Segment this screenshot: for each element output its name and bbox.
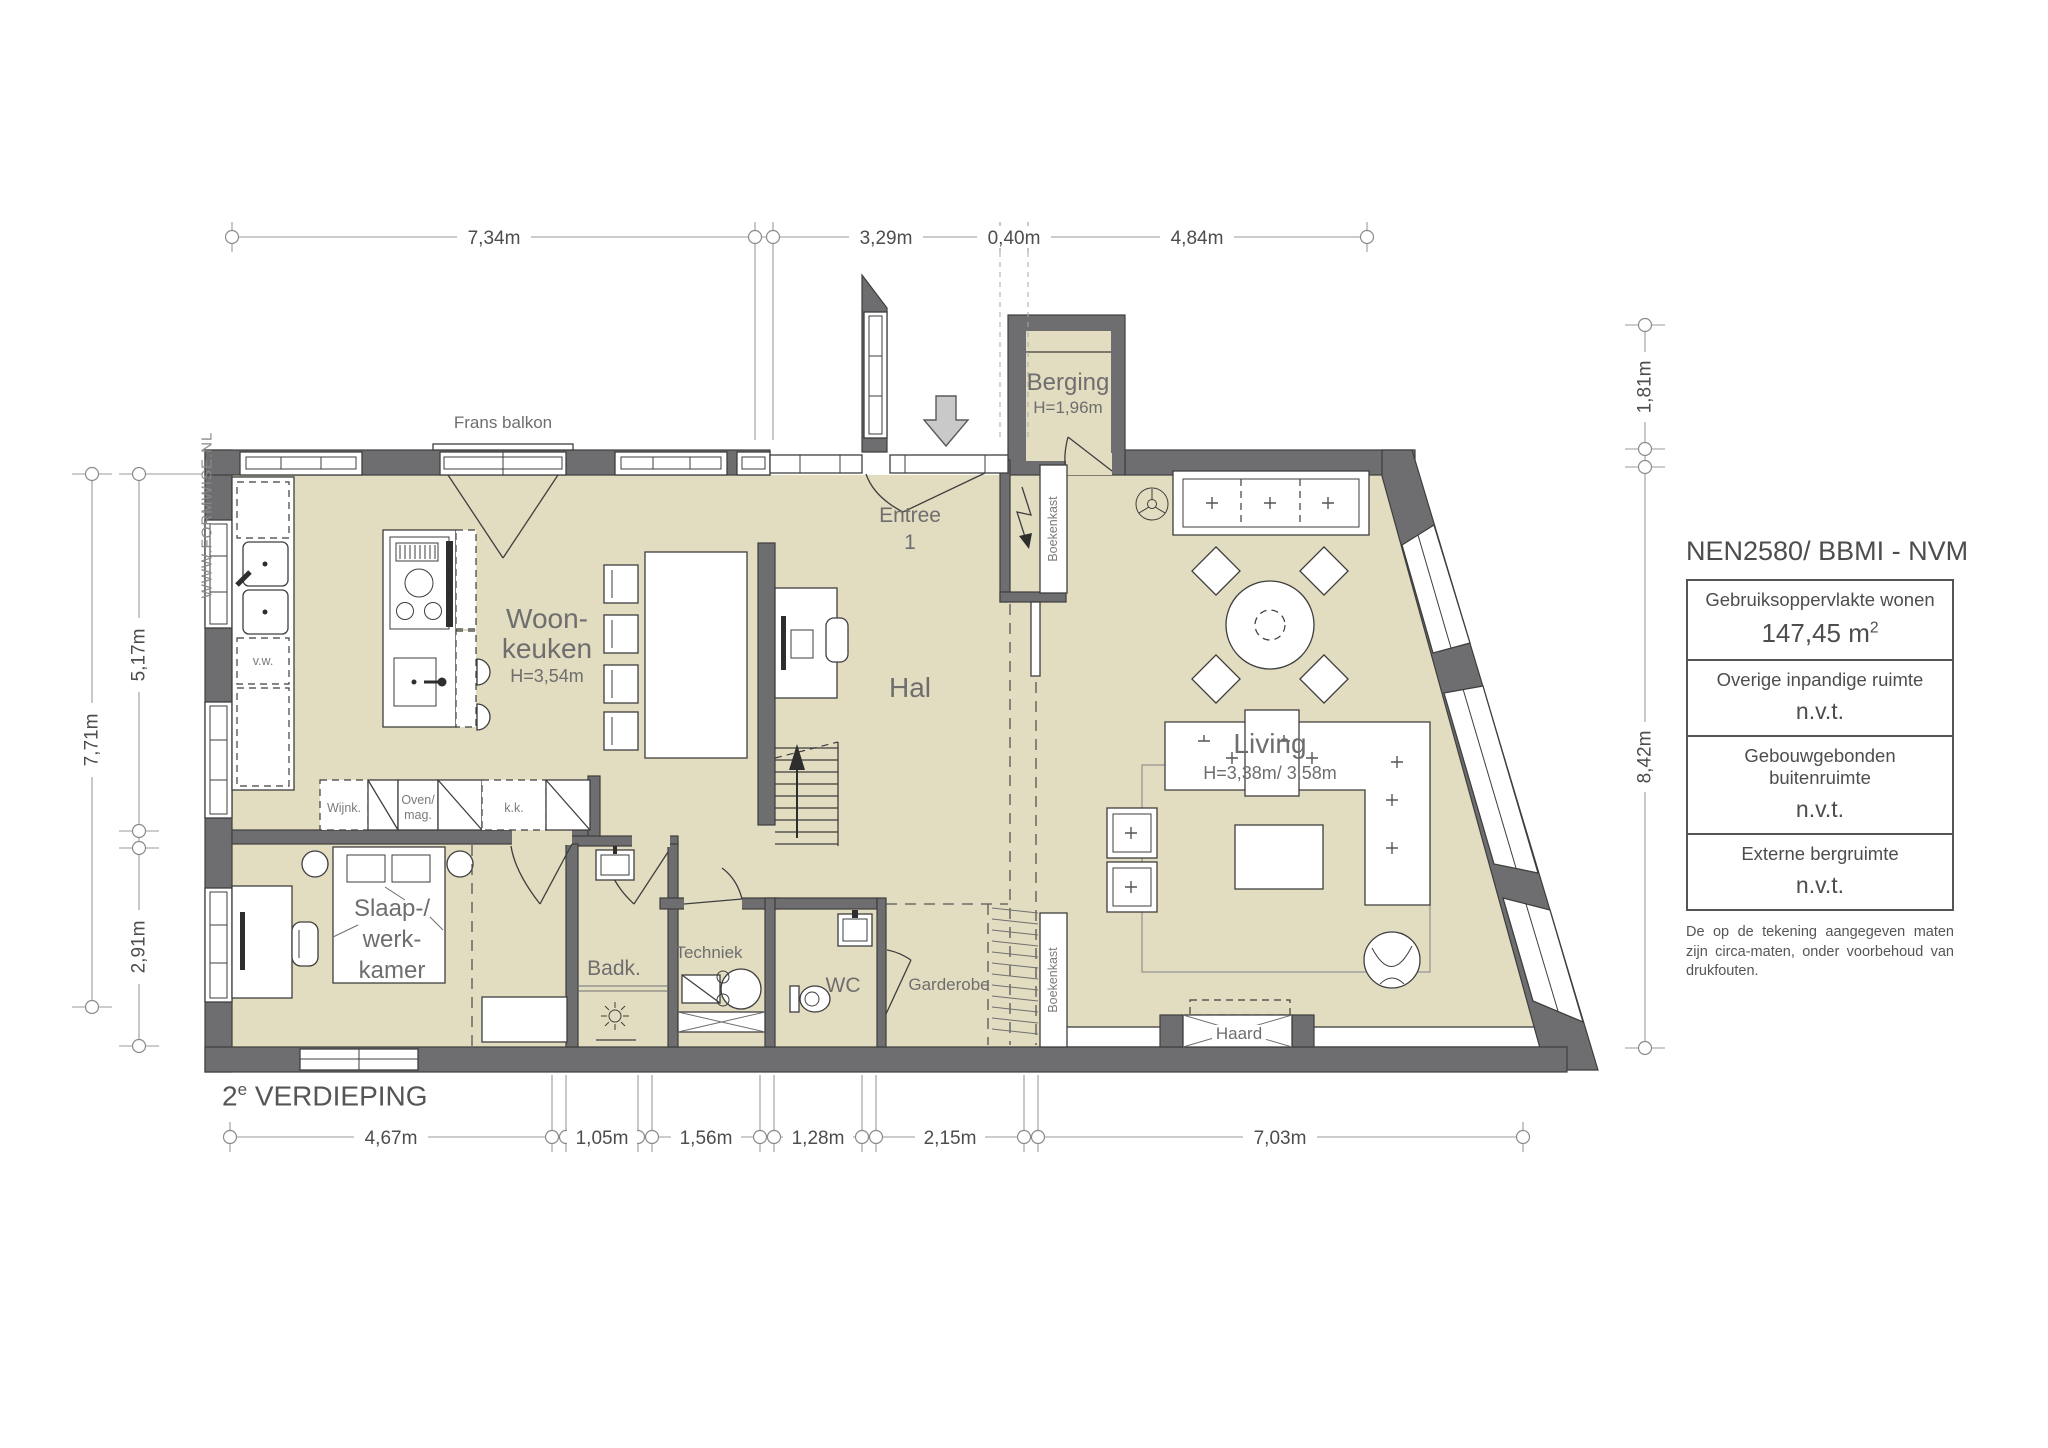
legend-row-value: n.v.t. <box>1692 796 1948 823</box>
label-oven: mag. <box>404 808 432 822</box>
label-badkamer: Badk. <box>587 957 641 980</box>
floor-title: 2e VERDIEPING <box>222 1080 428 1112</box>
legend-row-value: 147,45 m2 <box>1692 618 1948 649</box>
label-slaapkamer: Slaap-/ <box>354 895 430 922</box>
label-haard: Haard <box>1216 1024 1262 1043</box>
label-berging-height: H=1,96m <box>1033 398 1102 417</box>
legend-value-text: n.v.t. <box>1796 698 1844 724</box>
legend-row-value: n.v.t. <box>1692 872 1948 899</box>
label-hal: Hal <box>889 672 931 703</box>
label-berging: Berging <box>1027 369 1110 396</box>
label-techniek: Techniek <box>675 943 743 962</box>
label-slaapkamer: kamer <box>359 957 426 984</box>
label-living: Living <box>1233 728 1306 759</box>
label-garderobe: Garderobe <box>908 975 989 994</box>
dim-top-3: 0,40m <box>988 228 1041 249</box>
legend-row-gebruiksoppervlakte: Gebruiksoppervlakte wonen 147,45 m2 <box>1688 581 1952 661</box>
legend-disclaimer: De op de tekening aangegeven maten zijn … <box>1686 923 1954 982</box>
label-entree: 1 <box>904 531 916 554</box>
legend-row-gebouwgebonden: Gebouwgebonden buitenruimte n.v.t. <box>1688 737 1952 835</box>
legend-box: Gebruiksoppervlakte wonen 147,45 m2 Over… <box>1686 579 1954 911</box>
floor-title-number: 2 <box>222 1080 238 1111</box>
legend-row-label: Externe bergruimte <box>1692 843 1948 865</box>
dim-left-inner-1: 5,17m <box>129 629 150 682</box>
entrance-arrow-icon <box>924 396 968 446</box>
water-tank <box>721 969 761 1009</box>
floor-title-sup: e <box>238 1080 247 1099</box>
label-boekenkast-bottom: Boekenkast <box>1046 947 1060 1013</box>
legend-row-label: Gebouwgebonden buitenruimte <box>1692 745 1948 789</box>
dim-bottom-6: 7,03m <box>1254 1128 1307 1149</box>
side-table <box>447 851 473 877</box>
legend-title: NEN2580/ BBMI - NVM <box>1686 536 1954 567</box>
dim-bottom-3: 1,56m <box>680 1128 733 1149</box>
legend-row-label: Overige inpandige ruimte <box>1692 669 1948 691</box>
bedroom-chair <box>292 922 318 966</box>
dim-left-inner-2: 2,91m <box>129 921 150 974</box>
label-living-height: H=3,38m/ 3,58m <box>1203 763 1337 783</box>
coffee-table <box>1235 825 1323 889</box>
label-entree: Entree <box>879 504 941 527</box>
dim-left-outer: 7,71m <box>82 714 103 767</box>
label-koelkast: k.k. <box>504 801 523 815</box>
legend-value-text: 147,45 m <box>1761 618 1869 648</box>
label-slaapkamer: werk- <box>362 926 422 953</box>
legend-row-overige: Overige inpandige ruimte n.v.t. <box>1688 661 1952 737</box>
label-wijnkoeler: Wijnk. <box>327 801 361 815</box>
dining-table <box>645 552 747 758</box>
legend-row-label: Gebruiksoppervlakte wonen <box>1692 589 1948 611</box>
side-table <box>302 851 328 877</box>
monitor-icon <box>240 912 245 970</box>
label-boekenkast-top: Boekenkast <box>1046 496 1060 562</box>
dim-bottom-1: 4,67m <box>365 1128 418 1149</box>
legend-value-text: n.v.t. <box>1796 872 1844 898</box>
legend-value-sup: 2 <box>1870 619 1879 636</box>
watermark-formwise: WWW.FORMWISE.NL <box>199 432 216 599</box>
legend-value-text: n.v.t. <box>1796 796 1844 822</box>
dim-right-2: 8,42m <box>1635 731 1656 784</box>
toilet-tank <box>790 986 799 1012</box>
dim-top-4: 4,84m <box>1171 228 1224 249</box>
dim-top-2: 3,29m <box>860 228 913 249</box>
round-dining-table <box>1226 581 1314 669</box>
legend-panel: NEN2580/ BBMI - NVM Gebruiksoppervlakte … <box>1686 536 1954 982</box>
dim-bottom-5: 2,15m <box>924 1128 977 1149</box>
desk-chair <box>826 618 848 662</box>
dim-top-1: 7,34m <box>468 228 521 249</box>
monitor-icon <box>781 616 786 670</box>
dresser <box>482 997 567 1042</box>
floor-title-name: VERDIEPING <box>247 1080 427 1111</box>
legend-row-value: n.v.t. <box>1692 698 1948 725</box>
label-woonkeuken: keuken <box>502 633 592 664</box>
dim-right-1: 1,81m <box>1635 361 1656 414</box>
floorplan-page: Frans balkon Woon- keuken H=3,54m Entree… <box>0 0 2048 1448</box>
label-wc: WC <box>826 974 861 997</box>
label-woonkeuken-height: H=3,54m <box>510 666 584 686</box>
dim-bottom-4: 1,28m <box>792 1128 845 1149</box>
label-woonkeuken: Woon- <box>506 603 588 634</box>
balcony-rail <box>433 444 573 450</box>
swivel-chair <box>1364 932 1420 988</box>
dim-bottom-2: 1,05m <box>576 1128 629 1149</box>
label-vaatwasser: v.w. <box>253 654 274 668</box>
label-oven: Oven/ <box>401 793 435 807</box>
legend-row-externe: Externe bergruimte n.v.t. <box>1688 835 1952 909</box>
label-frans-balkon: Frans balkon <box>454 413 552 432</box>
